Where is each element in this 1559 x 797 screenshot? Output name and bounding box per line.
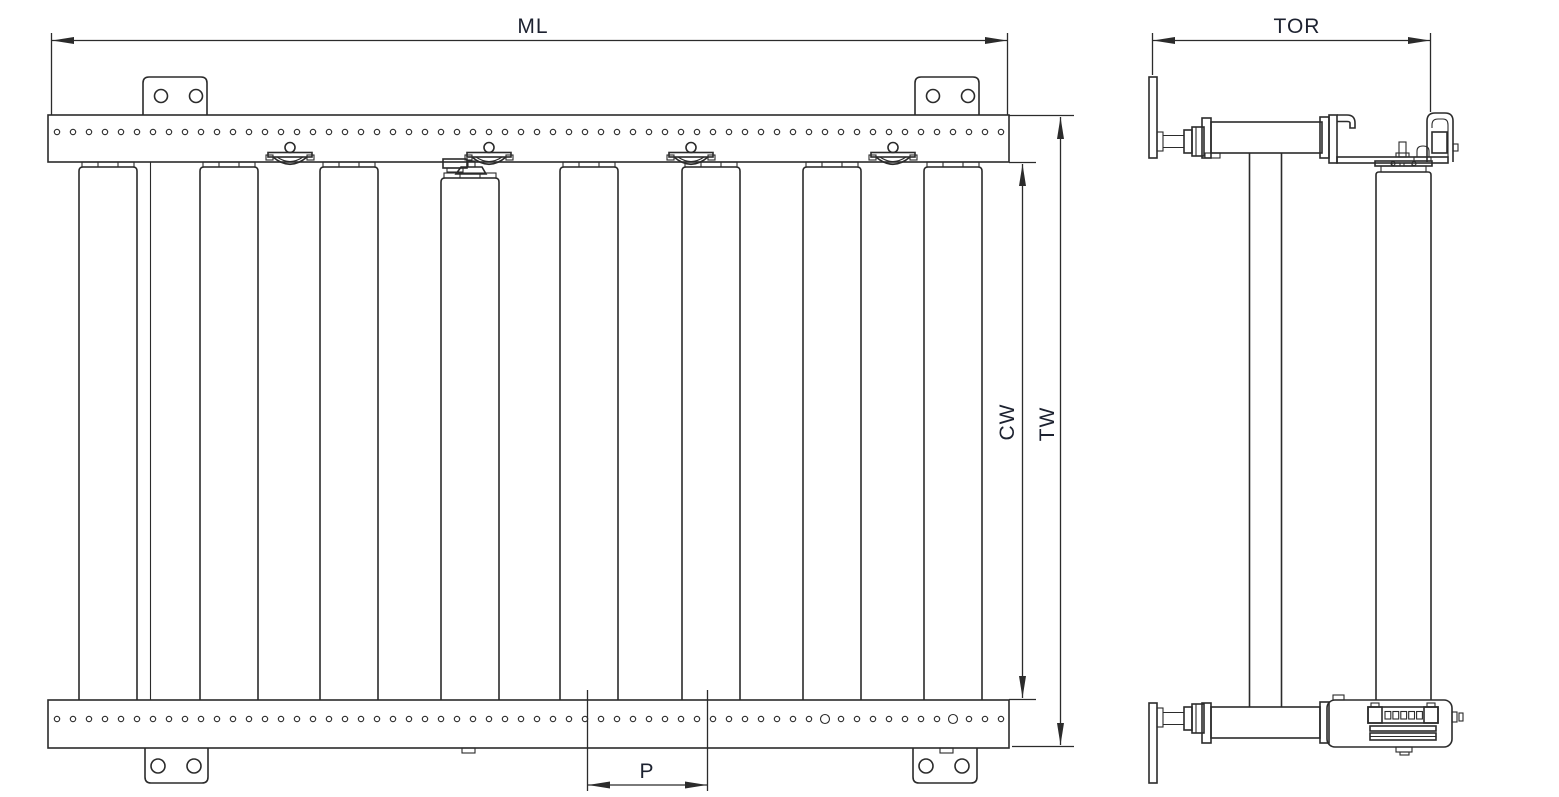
rail-hole xyxy=(438,129,443,134)
dim-p-label: P xyxy=(639,760,654,783)
rail-hole xyxy=(118,716,123,721)
arrowhead xyxy=(52,37,74,44)
arrowhead xyxy=(1057,117,1064,139)
rail-hole xyxy=(294,129,299,134)
rail-hole xyxy=(774,129,779,134)
rail-hole xyxy=(390,129,395,134)
rail-hole xyxy=(934,129,939,134)
rail-hole xyxy=(406,716,411,721)
rail-hole xyxy=(70,129,75,134)
chain-link xyxy=(1417,712,1423,720)
rail-hole xyxy=(230,716,235,721)
chain-link xyxy=(1385,712,1391,720)
rail-hole xyxy=(614,716,619,721)
rail-hole xyxy=(710,716,715,721)
rail-hole xyxy=(102,129,107,134)
chain-link xyxy=(1409,712,1415,720)
rail-hole xyxy=(246,716,251,721)
dim-ml-label: ML xyxy=(517,15,548,38)
dim-tor: TOR xyxy=(1153,15,1431,112)
motorized-roller xyxy=(441,173,499,700)
rail-hole xyxy=(870,129,875,134)
rail-hole xyxy=(630,129,635,134)
axle-rod xyxy=(1163,136,1184,148)
bracket-hole xyxy=(190,90,203,103)
dim-tor-label: TOR xyxy=(1274,15,1321,38)
rail-hole xyxy=(550,129,555,134)
rail-hole xyxy=(214,716,219,721)
rail-hole xyxy=(678,129,683,134)
rail-hole xyxy=(870,716,875,721)
rail-hole xyxy=(438,716,443,721)
roller-body xyxy=(1376,172,1431,700)
rail-hole xyxy=(118,129,123,134)
rail-hole xyxy=(166,716,171,721)
roller-clip xyxy=(667,143,715,165)
roller xyxy=(200,162,258,700)
rail-hole xyxy=(198,129,203,134)
rail-hole xyxy=(422,716,427,721)
rail-hole xyxy=(198,716,203,721)
rail-hole xyxy=(358,716,363,721)
top-rail-holes xyxy=(54,129,1003,134)
rail-hole xyxy=(454,716,459,721)
mount-bracket-top-right xyxy=(915,77,979,115)
bracket-hole xyxy=(927,90,940,103)
wall-plate xyxy=(1149,703,1157,783)
dim-cw: CW xyxy=(996,163,1036,700)
drive-box xyxy=(1327,695,1463,755)
tube-body xyxy=(1211,707,1320,738)
rail-hole xyxy=(310,716,315,721)
rail-hole xyxy=(486,129,491,134)
arrowhead xyxy=(1408,37,1430,44)
rail-hole-large xyxy=(949,715,958,724)
rail-hole xyxy=(902,129,907,134)
rail-hole xyxy=(182,716,187,721)
roller xyxy=(79,162,137,700)
hook-bracket xyxy=(1427,113,1458,162)
bracket-hole xyxy=(962,90,975,103)
chain-link xyxy=(1393,712,1399,720)
rail-hole xyxy=(630,716,635,721)
rail-hole xyxy=(534,716,539,721)
dim-ml: ML xyxy=(52,15,1008,115)
wall-plate xyxy=(1149,77,1157,158)
rail-hole xyxy=(262,129,267,134)
rail-hole xyxy=(278,716,283,721)
rail-hole xyxy=(694,716,699,721)
roller xyxy=(320,162,378,700)
rollers xyxy=(79,162,982,700)
rail-hole xyxy=(790,716,795,721)
rail-hole xyxy=(854,129,859,134)
bracket-hole xyxy=(955,759,969,773)
bracket-hole xyxy=(155,90,168,103)
support-top xyxy=(1149,77,1458,166)
arrowhead xyxy=(1057,723,1064,745)
rail-hole xyxy=(998,129,1003,134)
rail-hole xyxy=(566,129,571,134)
rail-hole xyxy=(166,129,171,134)
rail-hole xyxy=(54,129,59,134)
drawing-sheet: ML xyxy=(0,0,1559,797)
rail-hole xyxy=(742,129,747,134)
rail-hole xyxy=(614,129,619,134)
rail-hole xyxy=(806,129,811,134)
chain-link xyxy=(1401,712,1407,720)
rail-hole xyxy=(966,716,971,721)
rail-hole xyxy=(150,716,155,721)
plan-view: ML xyxy=(48,15,1074,791)
arrowhead xyxy=(1153,37,1175,44)
arrowhead xyxy=(1019,676,1026,698)
rail-hole xyxy=(502,129,507,134)
rail-hole xyxy=(70,716,75,721)
rail-hole xyxy=(886,716,891,721)
roller-clip xyxy=(869,143,917,165)
arrowhead xyxy=(685,782,707,789)
bracket-hole xyxy=(919,759,933,773)
technical-drawing: ML xyxy=(0,0,1559,797)
arrowhead xyxy=(1019,164,1026,186)
mount-bracket-top-left xyxy=(143,77,207,115)
chain-links xyxy=(1385,712,1422,720)
bracket-hole xyxy=(187,759,201,773)
rail-hole xyxy=(134,129,139,134)
roller xyxy=(682,162,740,700)
mount-bracket-bottom-left xyxy=(145,748,208,783)
dim-tw-label: TW xyxy=(1036,407,1059,442)
arrowhead xyxy=(985,37,1007,44)
bottom-rail-holes xyxy=(54,715,1003,724)
rail-hole xyxy=(374,129,379,134)
rail-hole xyxy=(278,129,283,134)
roller-end-view xyxy=(1375,161,1432,700)
rail-hole xyxy=(182,129,187,134)
rail-hole xyxy=(646,129,651,134)
roller-cap xyxy=(1381,166,1426,172)
top-rail xyxy=(48,115,1009,162)
axle-rod xyxy=(1163,713,1184,725)
rail-hole xyxy=(326,129,331,134)
dim-p: P xyxy=(588,690,708,791)
end-view: TOR xyxy=(1149,15,1463,783)
rail-hole xyxy=(982,716,987,721)
rail-hole xyxy=(838,129,843,134)
roller xyxy=(560,162,618,700)
rail-hole xyxy=(726,129,731,134)
tube-body xyxy=(1211,122,1322,153)
pulley-band xyxy=(1370,726,1436,731)
rail-hole xyxy=(262,716,267,721)
rail-hole xyxy=(918,129,923,134)
rail-hole xyxy=(150,129,155,134)
rail-hole xyxy=(598,129,603,134)
chain-assembly xyxy=(1368,703,1438,723)
rail-hole xyxy=(710,129,715,134)
bottom-rail xyxy=(48,700,1009,753)
bracket-hole xyxy=(151,759,165,773)
rail-hole xyxy=(806,716,811,721)
rail-hole xyxy=(726,716,731,721)
rail-hole xyxy=(486,716,491,721)
axle-collar xyxy=(1157,132,1163,151)
rail-hole xyxy=(838,716,843,721)
bracket-block xyxy=(1432,132,1447,153)
rail-hole xyxy=(758,716,763,721)
roller xyxy=(803,162,861,700)
rail-hole xyxy=(966,129,971,134)
rail-hole xyxy=(422,129,427,134)
rail-hole xyxy=(934,716,939,721)
rail-hole xyxy=(694,129,699,134)
side-bolt xyxy=(1452,712,1463,722)
rail-hole xyxy=(950,129,955,134)
rail-hole xyxy=(390,716,395,721)
rail-hole xyxy=(214,129,219,134)
rail-hole xyxy=(662,716,667,721)
rail-hole xyxy=(502,716,507,721)
rail-hole xyxy=(342,716,347,721)
rail-hole xyxy=(246,129,251,134)
dim-cw-label: CW xyxy=(996,404,1019,441)
rail-hole xyxy=(918,716,923,721)
rail-hole xyxy=(582,129,587,134)
rail-hole xyxy=(534,129,539,134)
arrowhead xyxy=(588,782,610,789)
support-column xyxy=(1250,153,1282,707)
rail-hole xyxy=(326,716,331,721)
rail-hole xyxy=(406,129,411,134)
rail-hole xyxy=(774,716,779,721)
axle-flange xyxy=(1184,707,1192,730)
support-bottom xyxy=(1149,702,1329,783)
rail-hole xyxy=(470,716,475,721)
roller-clips xyxy=(266,143,917,165)
rail-hole xyxy=(982,129,987,134)
rail-hole xyxy=(454,129,459,134)
rail-hole xyxy=(310,129,315,134)
rail-hole xyxy=(374,716,379,721)
rail-hole xyxy=(646,716,651,721)
rail-hole-large xyxy=(821,715,830,724)
roller xyxy=(924,162,982,700)
rail-hole xyxy=(358,129,363,134)
axle-flange xyxy=(1184,130,1192,153)
rail-hole xyxy=(230,129,235,134)
rail-hole xyxy=(854,716,859,721)
rail-hole xyxy=(134,716,139,721)
rail-hole xyxy=(998,716,1003,721)
rail-hole xyxy=(758,129,763,134)
rail-hole xyxy=(86,716,91,721)
rail-hole xyxy=(294,716,299,721)
stem-bolt xyxy=(1399,142,1406,157)
rail-hole xyxy=(470,129,475,134)
rail-hole xyxy=(54,716,59,721)
rail-hole xyxy=(822,129,827,134)
rail-hole xyxy=(790,129,795,134)
rail-hole xyxy=(598,716,603,721)
rail-hole xyxy=(550,716,555,721)
rail-hole xyxy=(518,129,523,134)
c-bracket xyxy=(1329,115,1448,163)
rail-hole xyxy=(566,716,571,721)
rail-hole xyxy=(342,129,347,134)
roller-clip xyxy=(266,143,314,165)
rail-hole xyxy=(902,716,907,721)
rail-hole xyxy=(86,129,91,134)
rail-hole xyxy=(742,716,747,721)
rail-hole xyxy=(886,129,891,134)
rail-hole xyxy=(678,716,683,721)
rail-hole xyxy=(102,716,107,721)
axle-collar xyxy=(1157,708,1163,727)
rail-hole xyxy=(518,716,523,721)
rail-hole xyxy=(662,129,667,134)
